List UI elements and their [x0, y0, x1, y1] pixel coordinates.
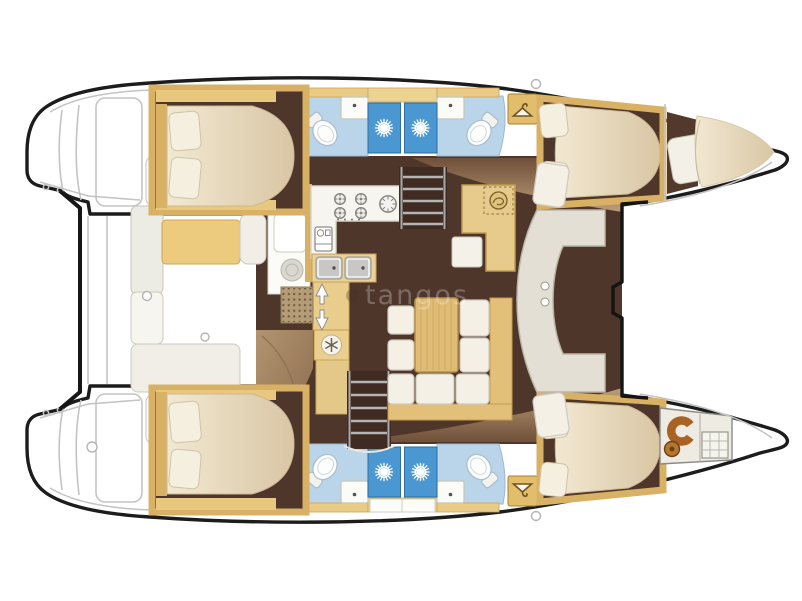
aft-cabin-port: [152, 88, 306, 212]
galley-sink: [345, 257, 371, 279]
sofa-fitting: [541, 282, 549, 290]
aft-crossbeam: [60, 191, 80, 409]
companionway-starboard: [344, 371, 394, 452]
wet-bar-top: [274, 214, 306, 252]
galley-sink: [316, 257, 342, 279]
sofa-cushion: [416, 374, 454, 404]
sofa-back: [388, 404, 512, 420]
snowflake-icon: [322, 335, 342, 355]
cockpit-bench-back: [131, 206, 163, 294]
cabin-shelf: [156, 90, 276, 102]
bathroom-strip-port: [276, 88, 537, 156]
sofa-cushion: [456, 374, 489, 404]
entry-mat-dots: [282, 288, 312, 322]
dining-table: [415, 298, 458, 372]
starboard-forepeak-head: [660, 408, 732, 464]
sofa-fitting: [541, 298, 549, 306]
cockpit-seat-end: [240, 214, 266, 264]
aft-cabin-starboard: [152, 388, 306, 512]
sofa-cushion: [460, 338, 489, 372]
round-sink: [281, 259, 303, 281]
sofa-cushion: [532, 392, 570, 438]
sofa-back: [490, 298, 512, 414]
cockpit-cushion-yellow: [162, 220, 240, 264]
companionway-port: [399, 167, 447, 229]
sofa-cushion: [388, 306, 414, 334]
forepeak-berth-cushion: [695, 116, 774, 187]
deck-grating: [702, 432, 728, 458]
crew-fitting-dot: [670, 447, 675, 452]
sofa-cushion: [532, 162, 570, 208]
extractor-icon: [380, 196, 396, 212]
cabinet: [437, 88, 499, 97]
floor-plan-page: { "document": { "type": "catamaran-inter…: [0, 0, 802, 601]
nav-instrument-icon: [490, 192, 507, 209]
deck-hatch-icon: [87, 442, 97, 452]
cabinet: [368, 88, 437, 102]
salon-dining: [388, 298, 512, 420]
deck-hatch-icon: [532, 80, 541, 89]
sofa-cushion: [460, 300, 489, 336]
deck-hatch-icon: [143, 292, 152, 301]
pillow: [168, 111, 201, 151]
galley-cabinet: [316, 360, 349, 414]
pillow: [538, 103, 568, 139]
sofa-cushion: [388, 374, 414, 404]
bed-headboard: [156, 104, 167, 208]
pillow: [168, 157, 201, 199]
sofa-cushion: [388, 340, 414, 370]
floor-plan-svg: [0, 0, 802, 601]
oven-icon: [315, 227, 332, 251]
cabinet: [306, 88, 368, 97]
deck-hatch-icon: [201, 333, 209, 341]
deck-hatch-icon: [532, 512, 541, 521]
nav-seat: [452, 237, 482, 267]
